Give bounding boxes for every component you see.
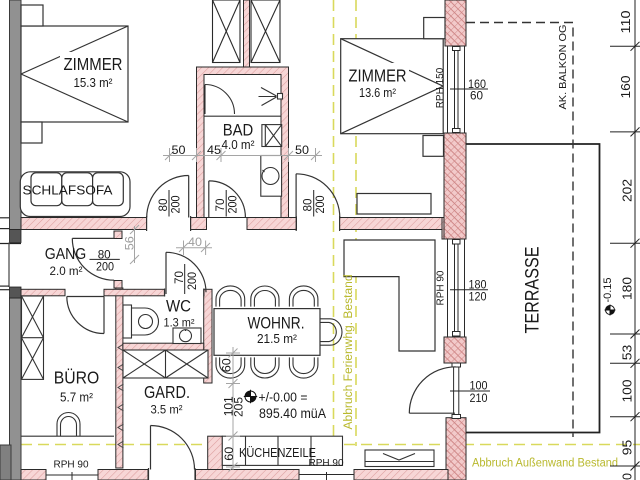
svg-text:+/-0.00 =: +/-0.00 = [259,391,308,405]
svg-text:100: 100 [621,379,635,402]
svg-text:RPH 90: RPH 90 [308,458,343,469]
svg-text:BAD: BAD [223,121,254,140]
svg-text:180: 180 [621,277,635,300]
svg-text:13.6 m²: 13.6 m² [359,85,397,100]
svg-text:RPH 90: RPH 90 [53,460,88,471]
svg-text:0: 0 [621,473,635,480]
svg-text:3.5 m²: 3.5 m² [151,403,183,417]
svg-text:GARD.: GARD. [144,382,190,402]
svg-text:50: 50 [172,143,186,157]
svg-text:RPH 150: RPH 150 [435,67,446,108]
svg-text:KÜCHENZEILE: KÜCHENZEILE [239,446,316,460]
svg-text:200: 200 [226,195,240,213]
svg-text:200: 200 [185,272,199,290]
svg-text:RPH 90: RPH 90 [436,270,447,305]
svg-text:-0.15: -0.15 [602,277,614,302]
svg-text:200: 200 [168,195,182,213]
svg-text:45: 45 [207,143,221,157]
svg-text:40: 40 [188,235,202,249]
svg-text:53: 53 [621,345,635,361]
svg-text:Abbruch Außenwand Bestand: Abbruch Außenwand Bestand [472,458,618,470]
svg-text:50: 50 [295,143,309,157]
svg-text:ZIMMER: ZIMMER [349,66,407,86]
svg-text:5.7 m²: 5.7 m² [60,391,93,405]
svg-text:895.40 müA: 895.40 müA [259,406,326,421]
svg-text:SCHLAFSOFA: SCHLAFSOFA [23,184,114,198]
svg-text:4.0 m²: 4.0 m² [222,138,255,152]
svg-text:15.3 m²: 15.3 m² [74,75,114,90]
svg-text:BÜRO: BÜRO [54,368,100,388]
svg-text:160: 160 [619,75,633,98]
svg-text:60: 60 [470,89,483,103]
svg-text:200: 200 [96,259,114,273]
svg-text:WC: WC [166,297,191,316]
svg-text:21.5 m²: 21.5 m² [257,332,297,346]
svg-text:95: 95 [621,440,635,456]
svg-text:1.3 m²: 1.3 m² [164,318,195,330]
svg-text:205: 205 [232,397,246,417]
svg-text:120: 120 [469,290,487,304]
svg-text:WOHNR.: WOHNR. [248,315,305,333]
svg-text:200: 200 [313,195,327,213]
svg-text:202: 202 [621,179,635,202]
svg-text:210: 210 [470,391,488,405]
svg-text:ZIMMER: ZIMMER [64,54,123,74]
svg-text:2.0 m²: 2.0 m² [50,264,83,278]
svg-text:GANG: GANG [45,246,87,263]
svg-text:AK. BALKON OG: AK. BALKON OG [557,25,569,110]
svg-text:110: 110 [619,10,633,33]
svg-text:TERRASSE: TERRASSE [522,247,544,334]
svg-text:56: 56 [122,236,136,250]
svg-text:60: 60 [222,446,236,460]
svg-text:60: 60 [219,358,233,372]
svg-text:Abbruch Ferienwhg. Bestand: Abbruch Ferienwhg. Bestand [343,275,355,430]
